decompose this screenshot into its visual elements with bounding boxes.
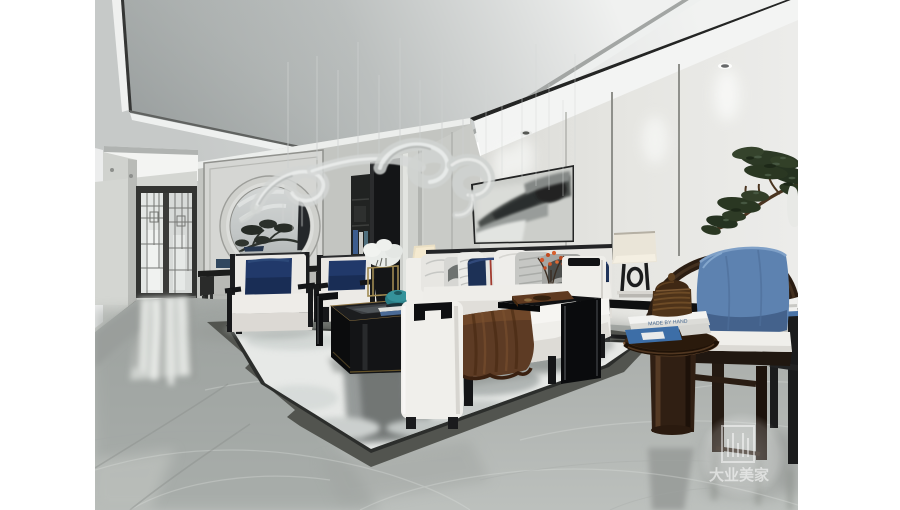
svg-text:大业美家: 大业美家 (709, 466, 769, 484)
